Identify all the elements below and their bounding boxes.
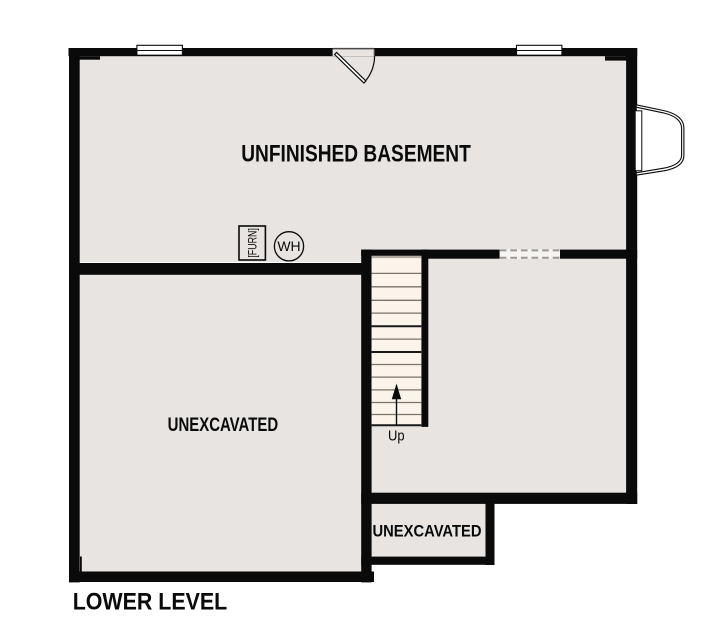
svg-text:UNEXCAVATED: UNEXCAVATED [373, 521, 482, 540]
svg-text:UNEXCAVATED: UNEXCAVATED [168, 414, 279, 436]
svg-text:WH: WH [277, 238, 300, 254]
svg-text:Up: Up [388, 429, 405, 445]
svg-text:UNFINISHED BASEMENT: UNFINISHED BASEMENT [241, 141, 471, 168]
svg-text:LOWER LEVEL: LOWER LEVEL [73, 590, 228, 616]
svg-text:[FURN]: [FURN] [246, 228, 260, 258]
